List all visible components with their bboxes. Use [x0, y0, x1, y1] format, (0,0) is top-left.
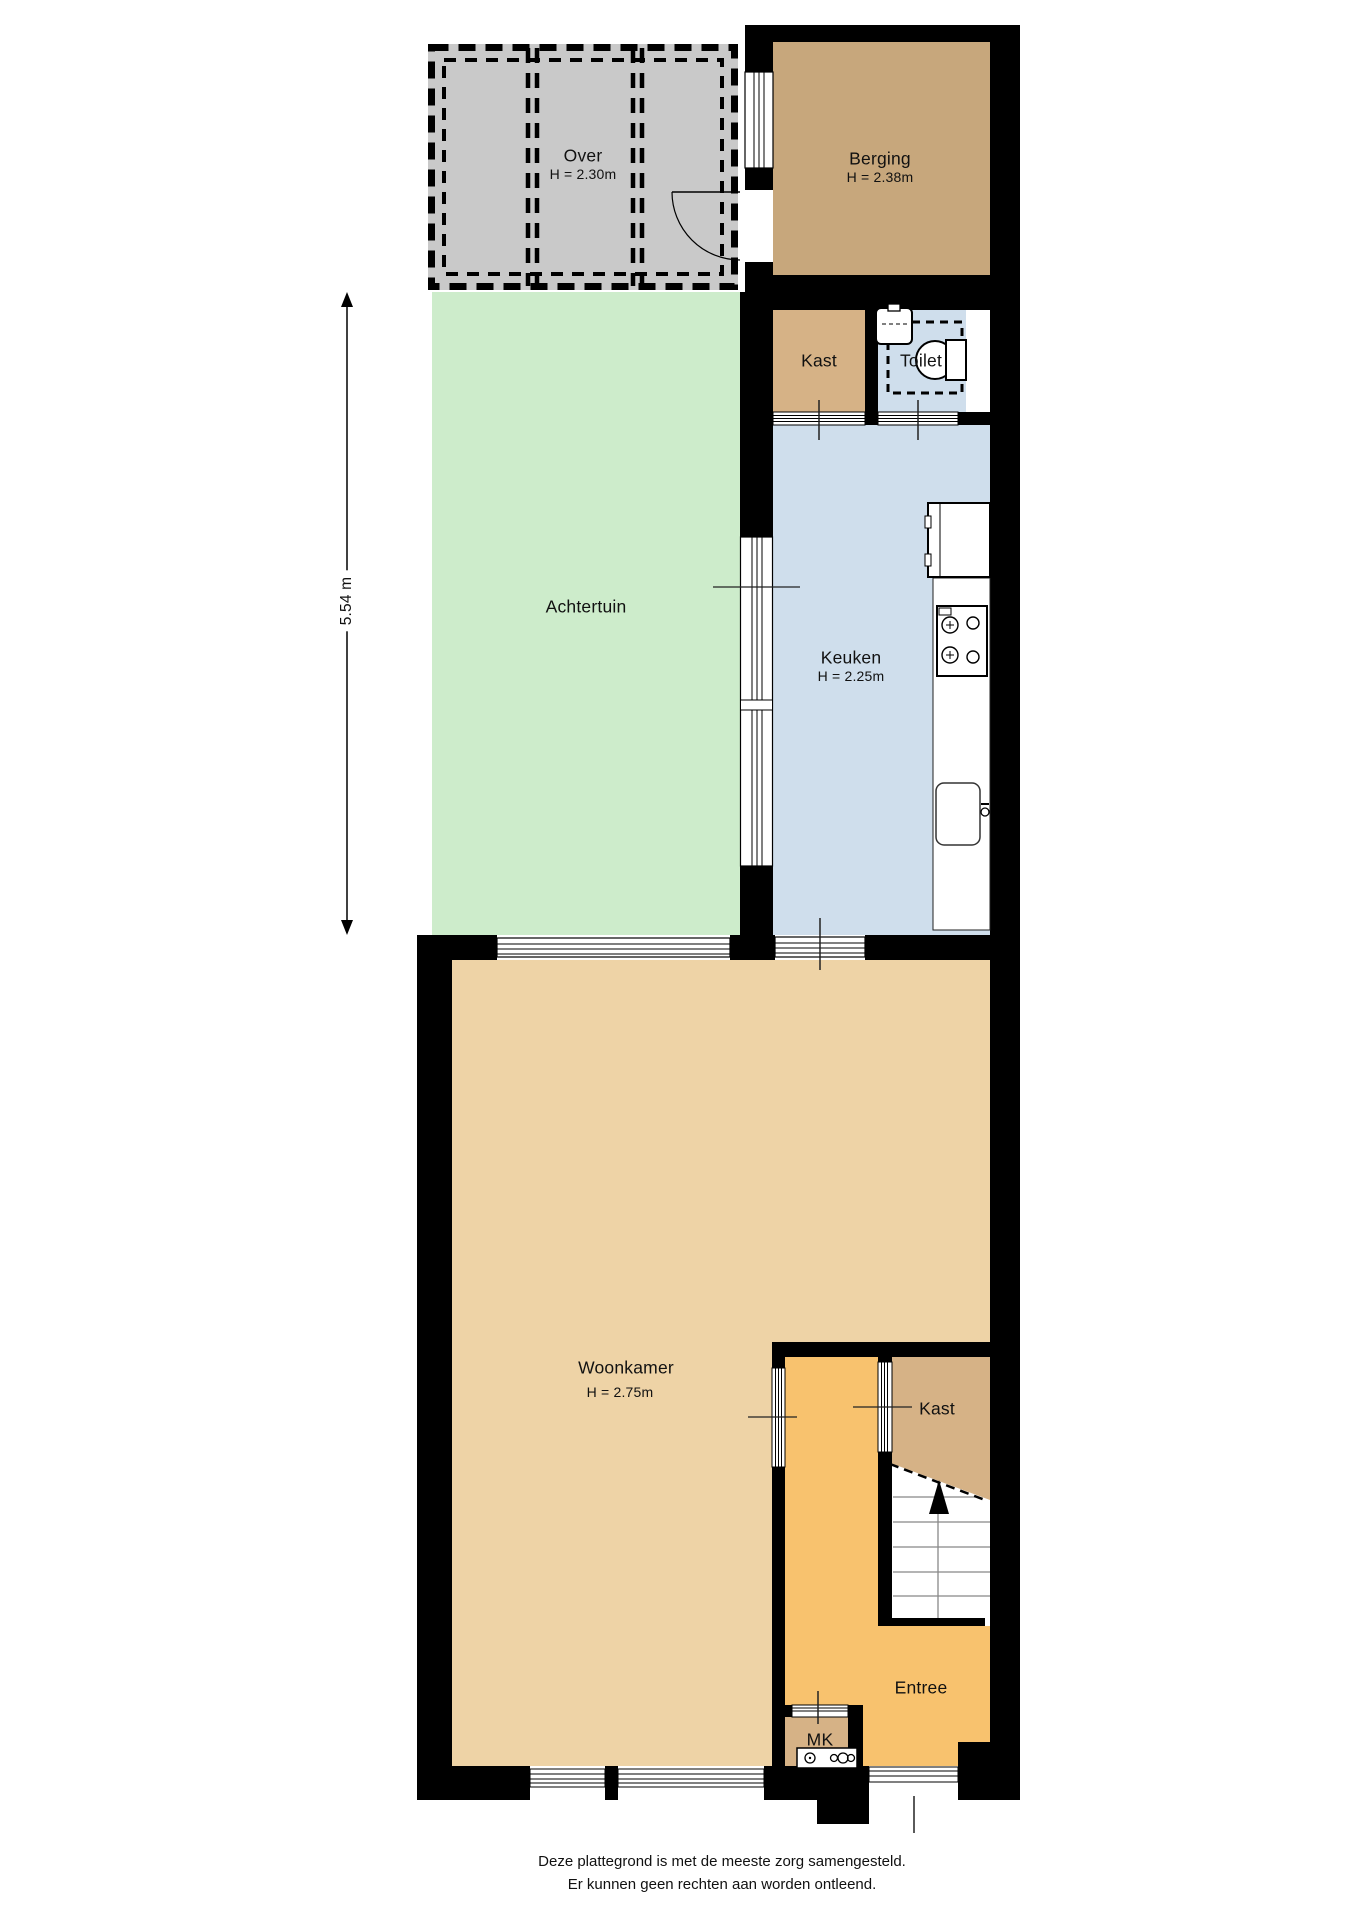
toilet-door	[878, 400, 958, 440]
keuken-label: Keuken	[821, 648, 882, 669]
achtertuin-label: Achtertuin	[546, 597, 627, 618]
garden-keuken-window	[713, 537, 800, 866]
woonkamer-label: Woonkamer	[578, 1358, 674, 1379]
disclaimer-line-1: Deze plattegrond is met de meeste zorg s…	[538, 1853, 906, 1870]
garden-depth-dimension: 5.54 m	[336, 571, 358, 632]
berging-height-label: H = 2.38m	[847, 169, 914, 185]
over-label: Over	[564, 146, 603, 167]
kast-lower-label: Kast	[919, 1399, 955, 1420]
mk-label: MK	[807, 1730, 834, 1751]
toilet-label: Toilet	[900, 351, 942, 372]
corridor-window	[748, 1368, 797, 1467]
woonkamer-garden-window	[497, 938, 730, 957]
berging-label: Berging	[849, 149, 911, 170]
entree-label: Entree	[895, 1678, 948, 1699]
kast-top-label: Kast	[801, 351, 837, 372]
keuken-height-label: H = 2.25m	[818, 668, 885, 684]
berging-window	[745, 72, 773, 168]
fridge-icon	[925, 503, 990, 577]
woonkamer-height-label: H = 2.75m	[587, 1384, 654, 1400]
woonkamer-bottom-window-left	[530, 1769, 605, 1787]
stove-icon	[937, 606, 987, 676]
keuken-woonkamer-door	[775, 918, 865, 970]
kast-top-door	[773, 400, 865, 440]
plan-linework	[0, 0, 1358, 1920]
toilet-sink-icon	[876, 304, 912, 344]
woonkamer-bottom-window-right	[618, 1769, 764, 1787]
mk-door	[792, 1691, 848, 1724]
kast-lower-window	[853, 1362, 912, 1452]
over-height-label: H = 2.30m	[550, 166, 617, 182]
meter-box-icon	[797, 1748, 857, 1768]
front-door	[869, 1767, 958, 1833]
floorplan: Over H = 2.30m Berging H = 2.38m Kast To…	[0, 0, 1358, 1920]
disclaimer-line-2: Er kunnen geen rechten aan worden ontlee…	[568, 1876, 877, 1893]
